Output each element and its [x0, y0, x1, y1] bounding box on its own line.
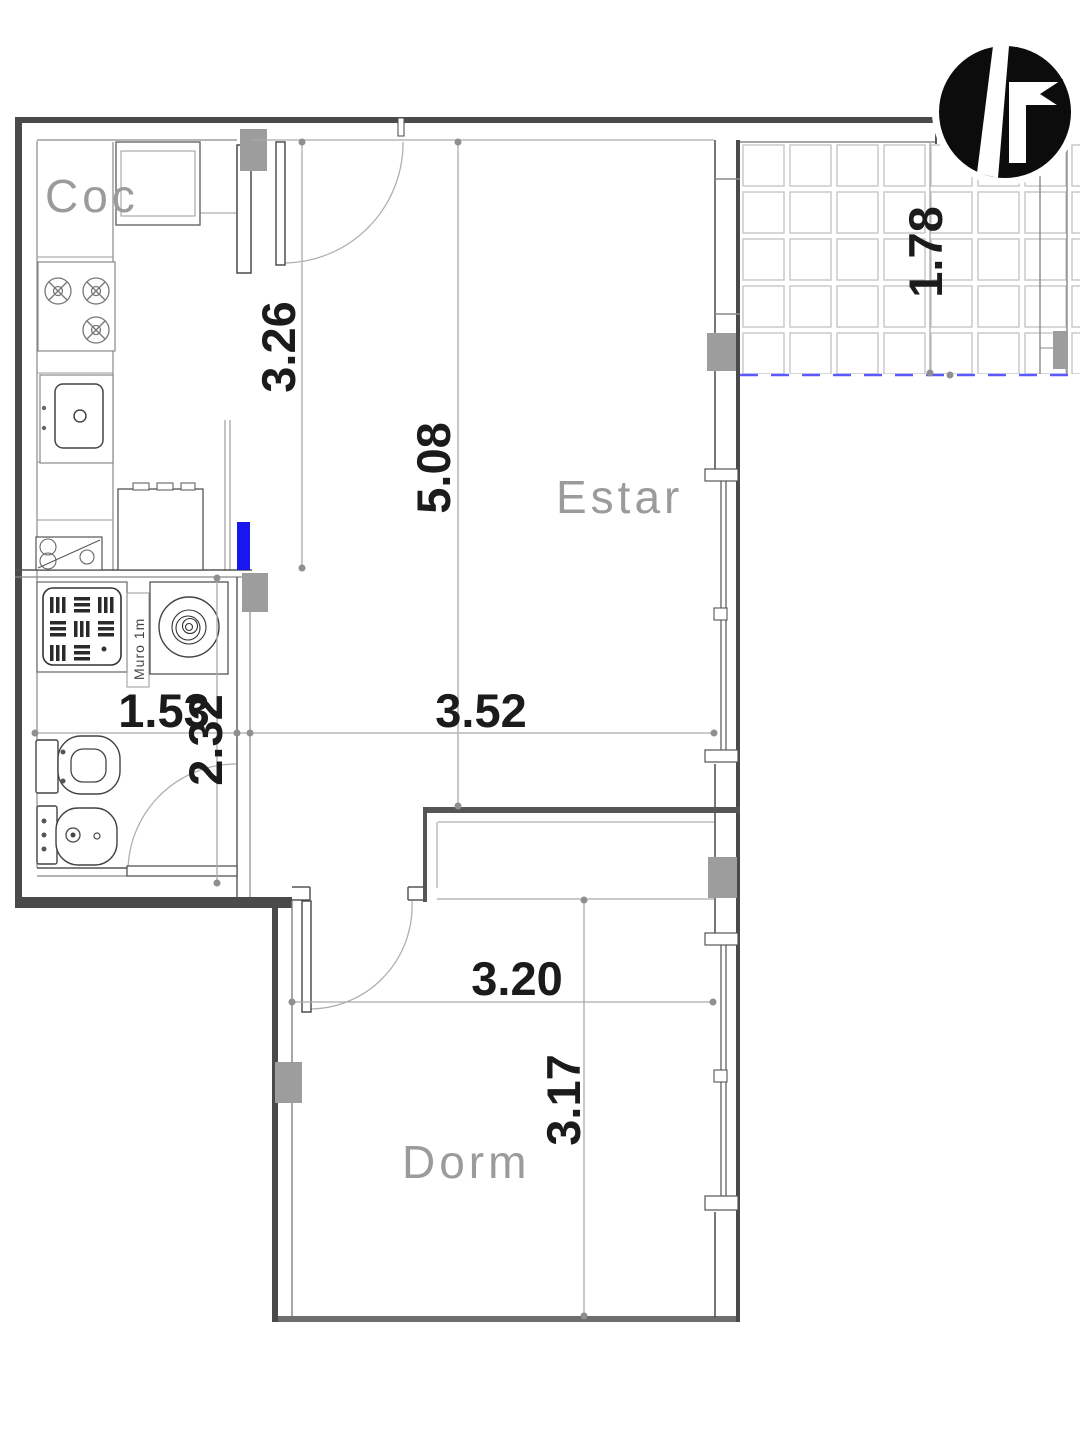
column [240, 129, 267, 171]
floor-plan-canvas: Coc Estar Dorm Muro 1m 3.26 5.08 1.78 1.… [0, 0, 1080, 1440]
highlighted-wall-segment [237, 522, 250, 570]
column [708, 857, 737, 898]
brand-logo [932, 39, 1078, 185]
floor-plan-drawing: Coc Estar Dorm Muro 1m 3.26 5.08 1.78 1.… [0, 0, 1080, 1440]
washing-machine [150, 582, 228, 674]
column [707, 333, 736, 371]
bidet [37, 806, 117, 865]
column [242, 573, 268, 612]
dimension-bedroom-depth: 3.17 [537, 1054, 590, 1145]
room-label-living: Estar [556, 471, 683, 523]
entry-door-leaf [276, 142, 285, 265]
stove [38, 262, 115, 351]
dimension-balcony-depth: 1.78 [899, 206, 952, 297]
entry-door-swing-arc [285, 142, 403, 263]
shower-drain-grate [37, 582, 127, 672]
room-label-kitchen: Coc [45, 170, 139, 222]
windows [705, 469, 738, 1210]
laundry-tub [36, 537, 102, 570]
dimension-living-depth: 5.08 [407, 422, 460, 513]
bedroom-door-leaf [302, 901, 311, 1012]
toilet [36, 736, 120, 794]
column [275, 1062, 302, 1103]
fridge [118, 483, 203, 570]
bedroom-window [705, 933, 738, 1210]
dimension-bath-depth: 2.32 [179, 694, 232, 785]
bedroom-door-swing-arc [310, 901, 412, 1009]
room-label-bedroom: Dorm [402, 1136, 530, 1188]
dimension-living-width: 3.52 [435, 684, 526, 737]
dimension-kitchen-depth: 3.26 [252, 301, 305, 392]
bedroom-door [302, 901, 412, 1012]
column [1053, 331, 1068, 369]
kitchen-sink [40, 375, 113, 463]
dimension-bedroom-width: 3.20 [471, 952, 562, 1005]
living-room-window [705, 469, 738, 762]
muro-annotation: Muro 1m [131, 618, 147, 680]
bathroom-door-leaf [127, 866, 237, 876]
